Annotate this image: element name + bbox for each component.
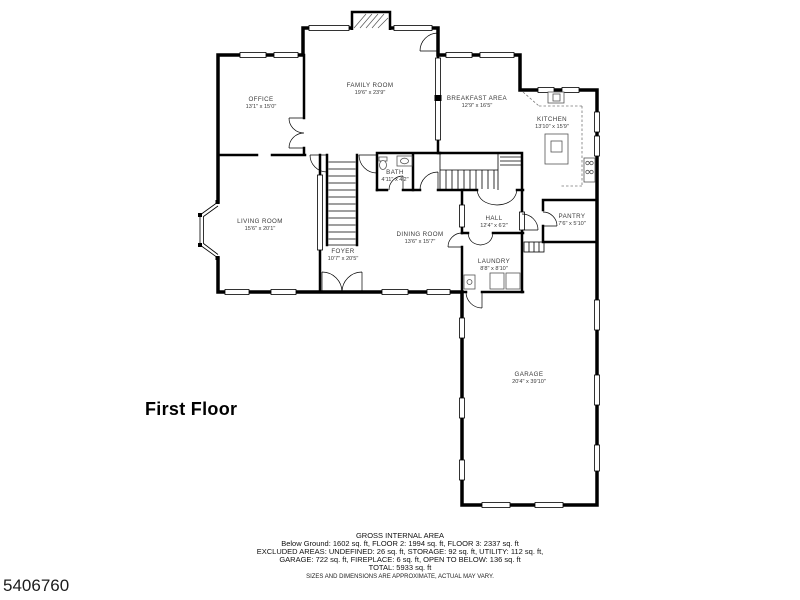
bay-window	[198, 200, 220, 260]
exterior-walls	[218, 28, 597, 505]
room-label-bath: BATH	[386, 169, 404, 176]
area-disclaimer: SIZES AND DIMENSIONS ARE APPROXIMATE, AC…	[0, 573, 800, 581]
room-dims-laundry: 8'8" x 8'10"	[480, 266, 508, 272]
room-label-garage: GARAGE	[515, 371, 544, 378]
listing-id: 5406760	[3, 576, 69, 596]
floor-plan-page: OFFICE 13'1" x 15'0" FAMILY ROOM 19'6" x…	[0, 0, 800, 600]
room-dims-dining: 13'6" x 15'7"	[405, 239, 436, 245]
laundry-fixtures	[464, 273, 520, 289]
room-dims-family: 19'6" x 23'9"	[355, 90, 386, 96]
room-dims-breakfast: 12'9" x 16'5"	[462, 103, 493, 109]
room-dims-kitchen: 13'10" x 15'9"	[535, 124, 569, 130]
room-label-dining: DINING ROOM	[396, 231, 443, 238]
room-dims-hall: 12'4" x 6'2"	[480, 223, 508, 229]
room-dims-pantry: 7'6" x 5'10"	[558, 221, 586, 227]
floor-plan-drawing: OFFICE 13'1" x 15'0" FAMILY ROOM 19'6" x…	[0, 0, 800, 600]
area-summary-line: TOTAL: 5933 sq. ft	[0, 564, 800, 572]
room-label-breakfast: BREAKFAST AREA	[447, 95, 508, 102]
room-dims-garage: 20'4" x 39'10"	[512, 379, 546, 385]
room-label-kitchen: KITCHEN	[537, 116, 567, 123]
floor-title: First Floor	[145, 399, 237, 420]
windows	[225, 26, 600, 508]
room-dims-foyer: 10'7" x 20'5"	[328, 256, 359, 262]
room-labels: OFFICE 13'1" x 15'0" FAMILY ROOM 19'6" x…	[237, 82, 586, 385]
room-label-office: OFFICE	[248, 96, 273, 103]
room-dims-office: 13'1" x 15'0"	[246, 104, 277, 110]
area-summary: GROSS INTERNAL AREA Below Ground: 1602 s…	[0, 532, 800, 581]
doors	[289, 33, 557, 308]
back-stairs	[440, 153, 522, 190]
garage-steps	[524, 242, 544, 252]
room-dims-living: 15'6" x 20'1"	[245, 226, 276, 232]
room-label-laundry: LAUNDRY	[478, 258, 510, 265]
room-label-hall: HALL	[485, 215, 502, 222]
room-label-living: LIVING ROOM	[237, 218, 283, 225]
kitchen-fixtures	[523, 92, 595, 186]
room-label-foyer: FOYER	[331, 248, 354, 255]
room-dims-bath: 4'11" x 4'2"	[381, 177, 408, 183]
room-label-pantry: PANTRY	[559, 213, 586, 220]
bath-fixtures	[379, 156, 412, 170]
foyer-stairs	[327, 162, 357, 245]
room-label-family: FAMILY ROOM	[347, 82, 394, 89]
fireplace	[352, 12, 390, 30]
